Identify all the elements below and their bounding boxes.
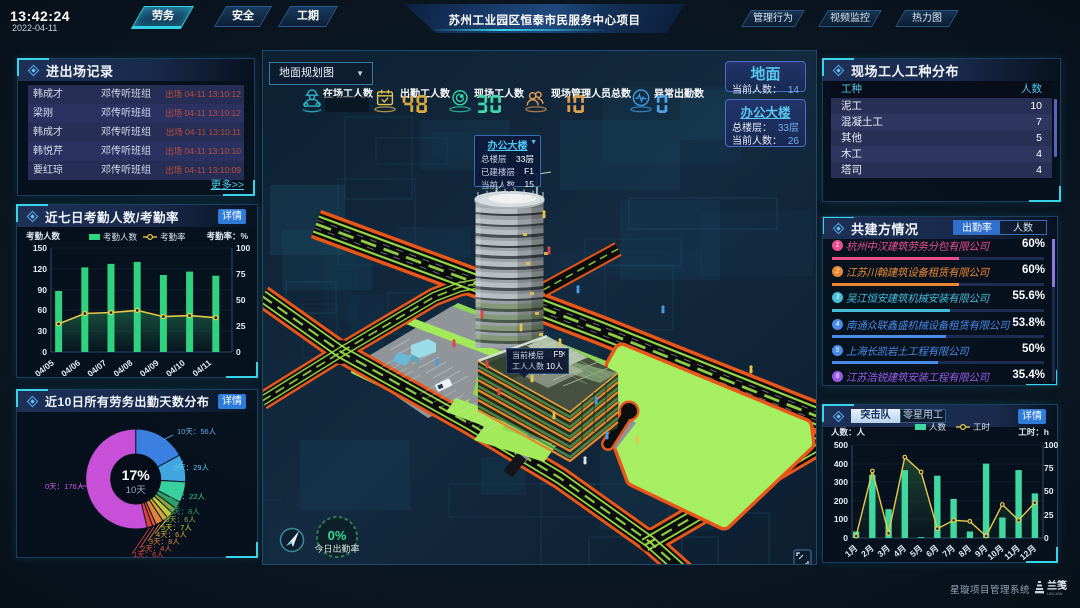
svg-text:人数: 人数 xyxy=(929,422,947,432)
svg-text:0%: 0% xyxy=(328,528,347,543)
svg-text:50: 50 xyxy=(236,295,246,305)
svg-text:75: 75 xyxy=(1044,463,1054,473)
svg-text:10天：56人: 10天：56人 xyxy=(177,427,217,436)
svg-text:0: 0 xyxy=(1044,533,1049,543)
svg-text:150: 150 xyxy=(33,243,47,253)
svg-text:考勤人数: 考勤人数 xyxy=(103,232,138,242)
svg-text:工时: 工时 xyxy=(973,422,991,432)
svg-text:10月: 10月 xyxy=(985,543,1005,560)
svg-text:3月: 3月 xyxy=(875,543,892,559)
svg-text:04/06: 04/06 xyxy=(59,358,82,376)
svg-text:50: 50 xyxy=(1044,486,1054,496)
svg-text:04/07: 04/07 xyxy=(85,358,108,376)
svg-text:LAN JIAN: LAN JIAN xyxy=(1047,592,1063,596)
svg-text:0: 0 xyxy=(236,347,241,357)
svg-text:5月: 5月 xyxy=(908,543,925,559)
svg-text:04/09: 04/09 xyxy=(138,358,161,376)
svg-text:04/05: 04/05 xyxy=(33,358,56,376)
svg-text:1天：6人: 1天：6人 xyxy=(133,550,164,558)
svg-text:4月: 4月 xyxy=(892,543,909,559)
svg-text:100: 100 xyxy=(236,243,250,253)
svg-text:75: 75 xyxy=(236,269,246,279)
svg-text:60: 60 xyxy=(38,305,48,315)
svg-text:0: 0 xyxy=(843,533,848,543)
svg-text:500: 500 xyxy=(834,440,848,450)
svg-text:7月: 7月 xyxy=(940,543,957,559)
svg-text:工时：h: 工时：h xyxy=(1018,427,1049,437)
svg-text:25: 25 xyxy=(1044,510,1054,520)
svg-text:8天：22人: 8天：22人 xyxy=(170,492,206,501)
svg-text:考勤率: 考勤率 xyxy=(160,232,186,242)
svg-text:04/08: 04/08 xyxy=(112,358,135,376)
svg-text:12月: 12月 xyxy=(1018,543,1038,560)
svg-text:人数：人: 人数：人 xyxy=(831,427,866,437)
svg-text:2月: 2月 xyxy=(859,543,876,559)
svg-text:120: 120 xyxy=(33,264,47,274)
svg-text:90: 90 xyxy=(38,285,48,295)
svg-text:30: 30 xyxy=(38,326,48,336)
svg-text:200: 200 xyxy=(834,496,848,506)
svg-text:17%: 17% xyxy=(122,467,151,483)
svg-text:300: 300 xyxy=(834,477,848,487)
svg-text:考勤率：%: 考勤率：% xyxy=(206,231,248,241)
svg-text:100: 100 xyxy=(1044,440,1058,450)
svg-text:25: 25 xyxy=(236,321,246,331)
svg-text:0天：176人: 0天：176人 xyxy=(45,482,85,491)
svg-text:11月: 11月 xyxy=(1002,543,1022,560)
svg-text:6月: 6月 xyxy=(924,543,941,559)
svg-text:04/10: 04/10 xyxy=(164,358,187,376)
svg-text:考勤人数: 考勤人数 xyxy=(26,231,61,241)
svg-text:兰笺: 兰笺 xyxy=(1047,579,1067,592)
svg-text:10天: 10天 xyxy=(126,485,147,496)
svg-text:0: 0 xyxy=(42,347,47,357)
svg-text:100: 100 xyxy=(834,514,848,524)
svg-text:04/11: 04/11 xyxy=(190,358,213,376)
svg-text:今日出勤率: 今日出勤率 xyxy=(314,543,359,554)
svg-text:400: 400 xyxy=(834,459,848,469)
svg-text:8月: 8月 xyxy=(957,543,974,559)
svg-text:1月: 1月 xyxy=(843,543,860,559)
